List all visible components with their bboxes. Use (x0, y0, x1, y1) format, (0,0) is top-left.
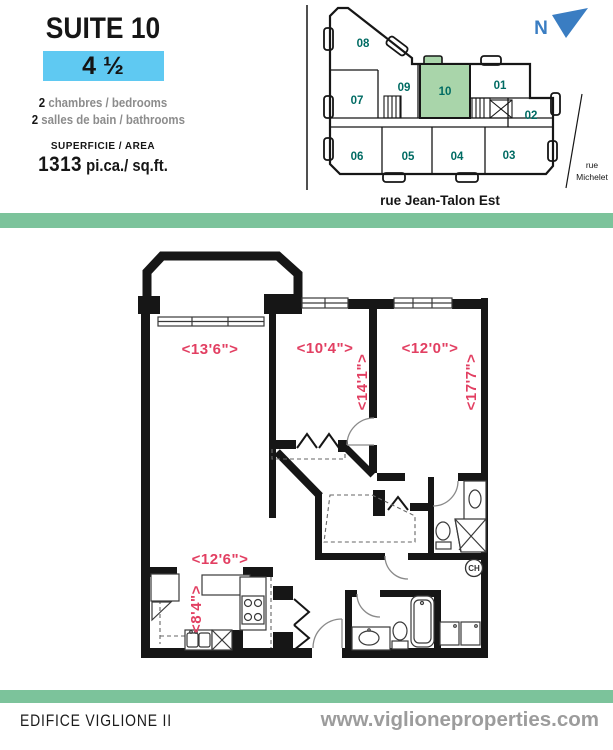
dim-kitchen-height: <8'4"> (188, 585, 205, 633)
flyer-page: SUITE 10 4 ½ 2 chambres / bedrooms 2 sal… (0, 0, 613, 750)
dim-bedroom2-height: <14'1"> (354, 354, 371, 411)
ensuite-toilet (436, 522, 451, 549)
windows (158, 298, 452, 326)
fridge (151, 574, 179, 601)
area-heading: SUPERFICIE / AREA (26, 140, 180, 152)
unit-label-03: 03 (503, 150, 516, 162)
washer-dryer (440, 622, 480, 645)
unit-label-02: 02 (525, 110, 538, 122)
main-bathroom-fixtures (352, 596, 434, 650)
green-divider-bottom (0, 690, 613, 703)
unit-label-01: 01 (494, 80, 507, 92)
toilet (392, 622, 408, 649)
dim-bedroom3-height: <17'7"> (463, 354, 480, 411)
street-label-jean-talon: rue Jean-Talon Est (380, 193, 500, 208)
area-unit: pi.ca./ sq.ft. (86, 157, 168, 175)
street-label-michelet: Michelet (576, 172, 608, 182)
floor-plan-svg: CH <13'6"> <10'4"> <14'1"> <12'0"> <17'7… (0, 228, 613, 690)
bathroom-count: 2 (32, 112, 38, 127)
website-url: www.viglioneproperties.com (321, 708, 599, 732)
spec-bathrooms: 2 salles de bain / bathrooms (32, 112, 175, 127)
unit-label-08: 08 (357, 38, 370, 50)
stove (242, 596, 264, 624)
unit-label-04: 04 (451, 151, 464, 163)
ensuite-sink (464, 481, 486, 520)
dim-bedroom2-width: <10'4"> (297, 340, 354, 357)
spec-list: 2 chambres / bedrooms 2 salles de bain /… (22, 95, 184, 127)
corner-shower (455, 519, 486, 552)
bedroom-count: 2 (39, 95, 45, 110)
dim-kitchen-width: <12'6"> (192, 551, 249, 568)
bedroom-label: chambres / bedrooms (48, 95, 167, 110)
dim-bedroom3-width: <12'0"> (402, 340, 459, 357)
dim-living: <13'6"> (182, 341, 239, 358)
north-triangle (552, 8, 588, 38)
water-heater: CH (466, 560, 483, 577)
unit-label-06: 06 (351, 151, 364, 163)
ensuite-fixtures (436, 481, 486, 552)
bathroom-label: salles de bain / bathrooms (41, 112, 185, 127)
area-value: 1313 (38, 153, 82, 176)
building-name: EDIFICE VIGLIONE II (20, 711, 172, 731)
fridge-door-swing (152, 602, 171, 620)
green-divider-top (0, 213, 613, 228)
unit-type-badge: 4 ½ (43, 51, 164, 81)
dishwasher (212, 630, 232, 650)
unit-label-07: 07 (351, 95, 364, 107)
north-label: N (534, 18, 548, 39)
info-panel: SUITE 10 4 ½ 2 chambres / bedrooms 2 sal… (22, 12, 184, 177)
street-label-rue: rue (586, 160, 599, 170)
north-arrow-icon: N (534, 8, 588, 39)
area-line: 1313 pi.ca./ sq.ft. (30, 153, 176, 177)
site-map: 08 07 09 10 01 02 06 05 04 03 N rue Jean… (300, 0, 613, 212)
floor-plan: CH <13'6"> <10'4"> <14'1"> <12'0"> <17'7… (0, 228, 613, 690)
spec-bedrooms: 2 chambres / bedrooms (32, 95, 175, 110)
suite-title: SUITE 10 (32, 12, 175, 46)
site-map-svg: 08 07 09 10 01 02 06 05 04 03 N rue Jean… (300, 0, 613, 212)
water-heater-label: CH (468, 564, 480, 573)
vanity-sink (352, 627, 390, 650)
unit-label-10: 10 (439, 86, 452, 98)
kitchen-fixtures (151, 574, 266, 650)
unit-label-09: 09 (398, 82, 411, 94)
bathtub (411, 596, 434, 647)
unit-label-05: 05 (402, 151, 415, 163)
